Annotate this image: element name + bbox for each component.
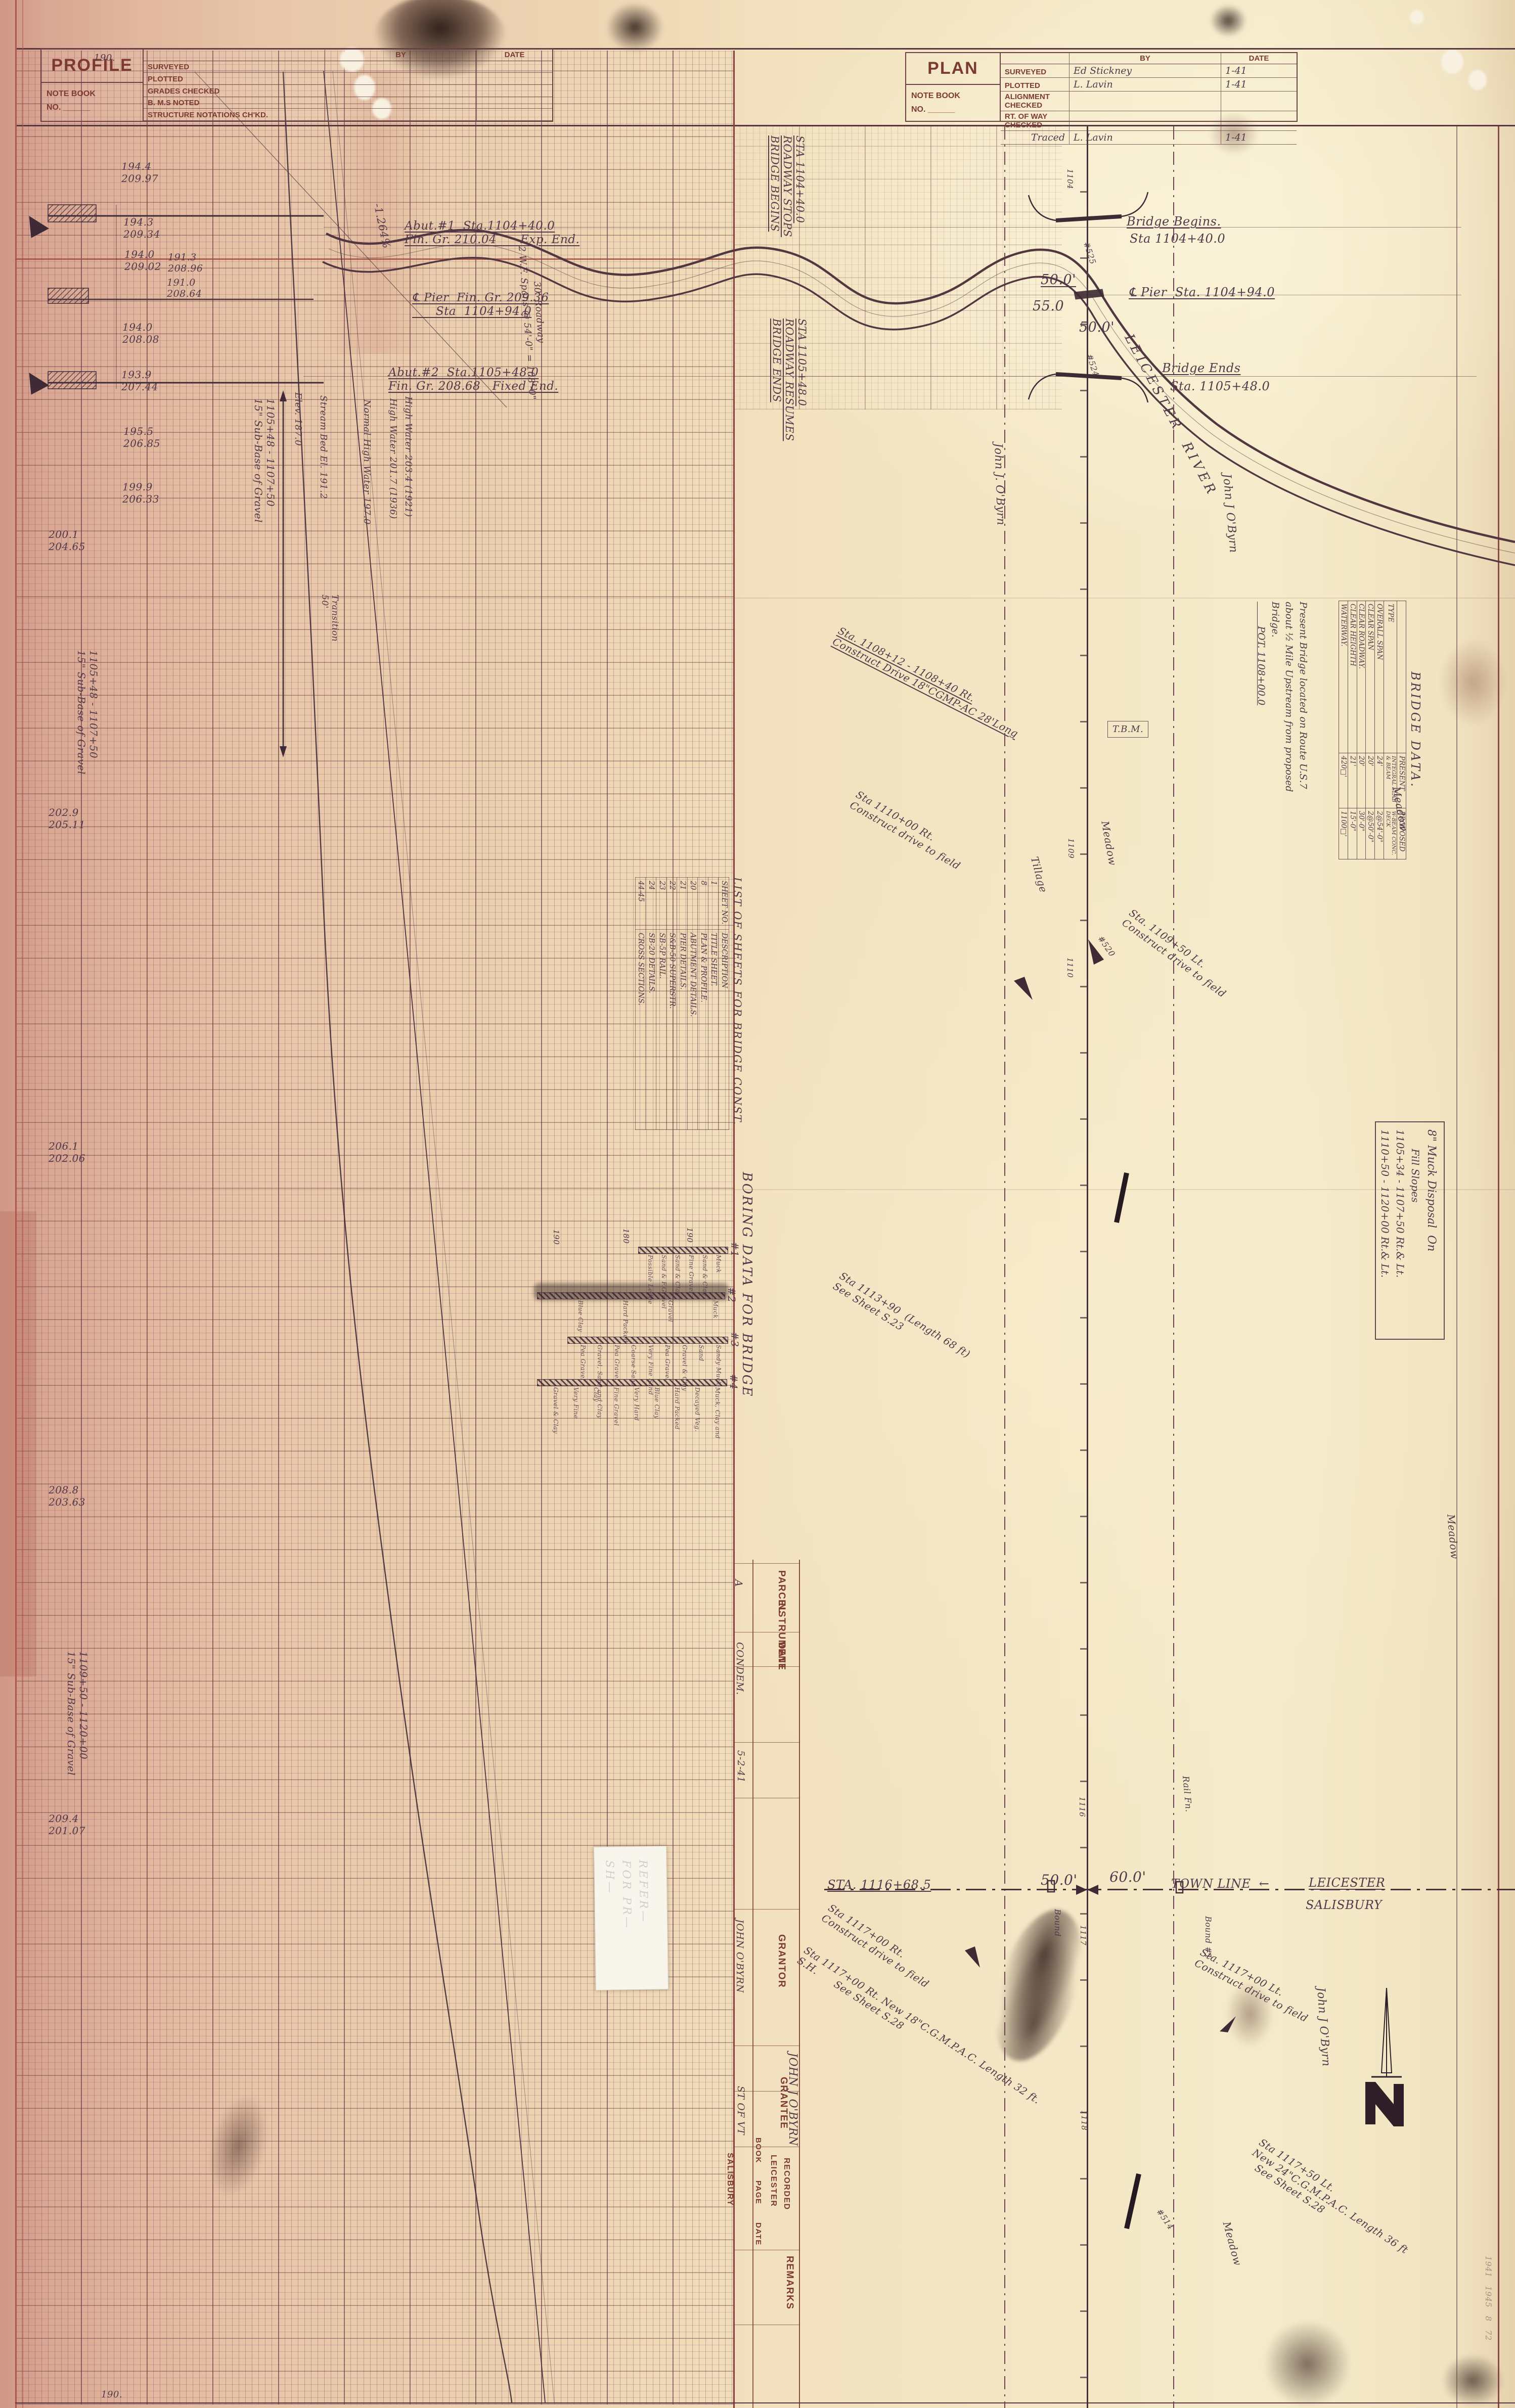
row-instrument: CONDEM. bbox=[734, 1642, 745, 1695]
row-label: SURVEYED bbox=[144, 61, 325, 73]
sta-1118: 1118 bbox=[1079, 2110, 1088, 2130]
label-line: SH— bbox=[603, 1860, 616, 1895]
muck-line: 1110+50 - 1120+00 Rt.& Lt. bbox=[1377, 1129, 1393, 1332]
hdr-remarks: REMARKS bbox=[784, 2256, 795, 2310]
hdr-book: BOOK bbox=[753, 2138, 763, 2163]
dim-55: 55.0 bbox=[1033, 298, 1064, 314]
elev-pair: 206.1 202.06 bbox=[49, 1141, 85, 1164]
hdr-rec-date: DATE bbox=[753, 2222, 763, 2246]
sheets-grid: SHEET NO.DESCRIPTION1TITLE SHEET.8PLAN &… bbox=[635, 877, 729, 1130]
col-by: BY bbox=[325, 49, 476, 61]
boring-stratum: Fine Gravel bbox=[613, 1387, 620, 1426]
elev-pair: 191.0 208.64 bbox=[167, 277, 202, 300]
boring-bar-3 bbox=[567, 1337, 728, 1344]
stream-bed: Stream Bed El. 191.2 bbox=[318, 395, 329, 499]
bridge-ends: Bridge Ends bbox=[1162, 361, 1241, 375]
bridge-data-cell: TYPE bbox=[1384, 601, 1397, 753]
sheets-cell: SB-5P RAIL. bbox=[656, 930, 667, 1130]
land-meadow-4: Meadow bbox=[1220, 2220, 1243, 2267]
sheets-cell: 22 bbox=[666, 878, 677, 930]
elev-scale: 190. bbox=[101, 2389, 122, 2400]
bridge-data-cell: CLEAR SPAN bbox=[1366, 601, 1375, 753]
hdr-page: PAGE bbox=[753, 2180, 763, 2204]
boring-stratum: Fine Gravel bbox=[688, 1255, 695, 1294]
sheets-cell: 24 bbox=[646, 878, 656, 930]
row-by bbox=[1069, 92, 1221, 111]
sheets-col: SHEET NO. bbox=[719, 878, 729, 930]
sheets-cell: ABUTMENT DETAILS. bbox=[687, 930, 698, 1130]
boring-stratum: Very Fine bbox=[572, 1387, 580, 1419]
stain bbox=[1263, 2320, 1352, 2408]
boring-stratum: Decayed Veg. bbox=[694, 1387, 701, 1432]
boring-stratum: Pea Gravel bbox=[579, 1345, 586, 1381]
boring-scale: 190 bbox=[685, 1228, 694, 1243]
muck-disposal-note: 8" Muck Disposal On Fill Slopes1105+34 -… bbox=[1375, 1121, 1445, 1340]
hdr-grantor: GRANTOR bbox=[776, 1934, 787, 1988]
roadway-stops: STA 1104+40.0 ROADWAY STOPS BRIDGE BEGIN… bbox=[769, 135, 806, 237]
normal-hw: Normal High Water 197.0 bbox=[362, 399, 372, 525]
boring-bar-4 bbox=[537, 1379, 727, 1386]
elev-pair: 199.9 206.33 bbox=[122, 481, 159, 505]
profile-paper-tint bbox=[0, 0, 743, 2408]
row-date bbox=[476, 73, 552, 85]
bridge-ends-sta: Sta. 1105+48.0 bbox=[1170, 379, 1270, 393]
tree-514: #514 bbox=[1154, 2207, 1176, 2232]
boring-524: #524 bbox=[1084, 353, 1100, 378]
boring-stratum: Blue Clay bbox=[577, 1300, 584, 1332]
sta-1116: 1116 bbox=[1077, 1797, 1086, 1817]
label-line: FOR PR— bbox=[619, 1860, 633, 1930]
road-centerline bbox=[1087, 126, 1088, 2408]
boring-stratum: Clay bbox=[593, 1387, 600, 1402]
elev-pair: 200.1 204.65 bbox=[49, 529, 85, 553]
sta-1104: 1104 bbox=[1065, 169, 1074, 189]
row-table-vline bbox=[799, 1560, 800, 2408]
hdr-grantee: GRANTEE bbox=[778, 2077, 789, 2129]
boring-stratum: Muck bbox=[712, 1300, 719, 1319]
boring-stratum: Muck bbox=[715, 1255, 722, 1273]
elev-pair: 194.0 208.08 bbox=[122, 322, 159, 345]
station-ticks bbox=[1080, 126, 1087, 2408]
right-inner-border bbox=[1456, 126, 1457, 2408]
land-meadow-3: Meadow bbox=[1444, 1514, 1460, 1560]
paper-spot bbox=[1410, 10, 1424, 24]
boring-title: BORING DATA FOR BRIDGE bbox=[739, 1172, 754, 1397]
paper-spot bbox=[1468, 70, 1487, 90]
hdr-leicester: LEICESTER bbox=[768, 2155, 778, 2207]
bridge-data-cell: CLEAR ROADWAY. bbox=[1357, 601, 1366, 753]
pier-sta: ℄ Pier Sta. 1104+94.0 bbox=[1129, 285, 1275, 299]
sheets-cell: SB-20 DETAILS. bbox=[646, 930, 656, 1130]
sheets-cell: 44-45 bbox=[635, 878, 646, 930]
subbase-span-1: 1105+48 - 1107+50 15" Sub-Base of Gravel bbox=[252, 398, 276, 523]
tree-520: #520 bbox=[1096, 934, 1117, 959]
boring-id: #4 bbox=[727, 1374, 739, 1389]
row-date bbox=[476, 61, 552, 73]
notebook-cell: NOTE BOOK NO. ______ bbox=[41, 82, 143, 121]
hdr-recorded: RECORDED bbox=[781, 2158, 791, 2210]
col-by: BY bbox=[1069, 53, 1221, 64]
river-name: LEICESTER RIVER bbox=[1121, 332, 1220, 499]
boring-stratum: Sand & Clay bbox=[701, 1255, 708, 1296]
boring-stratum: Pea Gravel bbox=[664, 1345, 671, 1381]
boring-bar-2 bbox=[537, 1292, 725, 1299]
bridge-data-cell: 20' bbox=[1366, 753, 1375, 808]
muck-line: Fill Slopes bbox=[1408, 1129, 1423, 1332]
bridge-data-cell: 20' bbox=[1357, 753, 1366, 808]
row-date bbox=[476, 109, 552, 121]
drive-1110: Sta 1110+00 Rt. Construct drive to field bbox=[848, 789, 968, 872]
row-date: 1-41 bbox=[1221, 64, 1297, 78]
north-arrow bbox=[1365, 1988, 1404, 2126]
boring-stratum: Muck, Clay and bbox=[714, 1387, 721, 1439]
note-line: about ½ Mile Upstream from proposed bbox=[1282, 602, 1296, 842]
boring-stratum: Sand & Clay bbox=[674, 1255, 681, 1296]
row-grantor: JOHN O'BYRN bbox=[734, 1919, 745, 1993]
row-by bbox=[325, 109, 476, 121]
boring-stratum: Gravel bbox=[667, 1300, 674, 1322]
leader-arrows bbox=[965, 939, 1236, 2032]
elev-pair: 195.5 206.85 bbox=[123, 426, 160, 449]
boring-stratum: Blue Clay bbox=[653, 1387, 660, 1419]
dim-50-a: 50.0' bbox=[1041, 272, 1076, 288]
owner-obyrn-3: John J O'Byrn bbox=[1314, 1987, 1332, 2067]
sheets-cell: 1 bbox=[708, 878, 719, 930]
culvert-1113: Sta 1113+90 (Length 68 ft) See Sheet S.2… bbox=[831, 1270, 972, 1371]
drawing-sheet: PROFILENOTE BOOK NO. ______BYDATESURVEYE… bbox=[0, 0, 1515, 2408]
tbm: T.B.M. bbox=[1107, 721, 1148, 738]
bridge-data-cell: WATERWAY. bbox=[1339, 601, 1348, 753]
right-border bbox=[1498, 126, 1499, 2408]
elev-pair: 193.9 207.44 bbox=[121, 369, 158, 393]
bridge-data-cell: 420□' bbox=[1339, 753, 1348, 808]
elev-pair: 194.3 209.34 bbox=[123, 216, 160, 240]
elev-pair: 194.0 209.02 bbox=[124, 249, 161, 272]
elev-pair: 194.4 209.97 bbox=[121, 161, 158, 185]
row-label: ALIGNMENT CHECKED bbox=[1001, 92, 1069, 111]
elev-pair: 191.3 208.96 bbox=[168, 252, 203, 275]
bridge-data-cell: 2@54'-0" bbox=[1375, 808, 1384, 859]
note-line: Bridge. bbox=[1268, 602, 1282, 842]
boring-bar-1 bbox=[638, 1247, 728, 1254]
boring-stratum: Gravel & Clay bbox=[552, 1387, 559, 1434]
title-block-rows: BYDATESURVEYEDPLOTTEDGRADES CHECKEDB. M.… bbox=[144, 49, 552, 121]
row-date bbox=[1221, 92, 1297, 111]
bound-2: Bound #1 bbox=[1203, 1916, 1213, 1959]
sheets-cell: PIER DETAILS. bbox=[677, 930, 688, 1130]
row-by: L. Lavin bbox=[1069, 131, 1221, 145]
bridge-data-cell: 21' bbox=[1348, 753, 1357, 808]
row-date bbox=[476, 97, 552, 109]
bridge-data-title: BRIDGE DATA. bbox=[1408, 601, 1422, 859]
boring-scale: 190 bbox=[551, 1230, 560, 1245]
drive-1108: Sta. 1108+12 - 1108+40 Rt. Construct Dri… bbox=[831, 625, 1026, 740]
title-block-title: PLAN bbox=[906, 53, 1000, 84]
hdr-date: DATE bbox=[776, 1642, 787, 1670]
row-by bbox=[325, 85, 476, 97]
corner-record: 1941 1945 8 72 bbox=[1483, 2256, 1493, 2341]
boring-stratum: Pea Gravel bbox=[613, 1345, 620, 1381]
row-table-vline bbox=[752, 1560, 753, 2408]
bridge-data-cell: 24' bbox=[1375, 753, 1384, 808]
high-water-1936: High Water 201.7 (1936) bbox=[388, 398, 398, 519]
note-line: Present Bridge located on Route U.S.7 bbox=[1296, 602, 1310, 842]
elev-pair: 202.9 205.11 bbox=[49, 807, 85, 831]
sta-1110: 1110 bbox=[1065, 958, 1074, 978]
culvert-1117-lt: Sta 1117+50 Lt. New 24"C.G.M.P.A.C. Leng… bbox=[1243, 2137, 1416, 2266]
sheets-cell: CROSS SECTIONS. bbox=[635, 930, 646, 1130]
owner-obyrn-2: John J O'Byrn bbox=[1220, 473, 1240, 554]
row-by: L. Lavin bbox=[1069, 78, 1221, 92]
row-label: SURVEYED bbox=[1001, 64, 1069, 78]
bridge-begins-sta: Sta 1104+40.0 bbox=[1130, 232, 1225, 246]
stain bbox=[1441, 2354, 1504, 2407]
boring-stratum: Hard Packed bbox=[674, 1387, 681, 1430]
row-by bbox=[1069, 111, 1221, 131]
title-block-left: PLANNOTE BOOK NO. ______ bbox=[906, 53, 1001, 121]
hdr-salisbury: SALISBURY bbox=[725, 2153, 734, 2206]
dim-50-b: 50.0' bbox=[1079, 320, 1115, 336]
row-date bbox=[476, 85, 552, 97]
rail-fence: Rail Fn. bbox=[1180, 1776, 1193, 1812]
sheets-cell: 20 bbox=[687, 878, 698, 930]
row-date bbox=[1221, 111, 1297, 131]
row-label: B. M.S NOTED bbox=[144, 97, 325, 109]
row-by bbox=[325, 73, 476, 85]
boring-id: #2 bbox=[725, 1287, 737, 1302]
bridge-data-cell: 2@50'-0" bbox=[1366, 808, 1375, 859]
row-date: 5-2-41 bbox=[735, 1750, 746, 1783]
townline-label: TOWN LINE ← bbox=[1171, 1877, 1269, 1891]
row-label: GRADES CHECKED bbox=[144, 85, 325, 97]
boring-id: #3 bbox=[728, 1332, 740, 1347]
transition: Transition 50' bbox=[320, 595, 340, 642]
row-label: PLOTTED bbox=[1001, 78, 1069, 92]
boring-stratum: Very Hard bbox=[633, 1387, 640, 1421]
roadway-resumes: STA 1105+48.0 ROADWAY RESUMES BRIDGE END… bbox=[771, 319, 808, 441]
town-leicester: LEICESTER bbox=[1309, 1876, 1385, 1890]
sheets-cell: PLAN & PROFILE. bbox=[698, 930, 708, 1130]
townline-dim-60: 60.0' bbox=[1109, 1869, 1146, 1885]
bridge-data-cell: 1100□' bbox=[1339, 808, 1348, 859]
row-date: 1-41 bbox=[1221, 78, 1297, 92]
col-blank bbox=[1001, 53, 1069, 64]
ink-stain bbox=[1210, 4, 1247, 37]
sheets-cell: 8 bbox=[698, 878, 708, 930]
muck-line: 8" Muck Disposal On bbox=[1423, 1129, 1440, 1332]
col-blank bbox=[144, 49, 325, 61]
boring-id: #1 bbox=[728, 1242, 740, 1257]
row-label: PLOTTED bbox=[144, 73, 325, 85]
sheets-cell: 21 bbox=[677, 878, 688, 930]
row-by: Ed Stickney bbox=[1069, 64, 1221, 78]
profile-title-block: PROFILENOTE BOOK NO. ______BYDATESURVEYE… bbox=[40, 48, 553, 122]
abut1-note: Abut.#1 Sta.1104+40.0 Fin. Gr. 210.04 Ex… bbox=[405, 219, 580, 247]
paper-spot bbox=[1441, 50, 1463, 74]
bridge-begins: Bridge Begins. bbox=[1127, 214, 1221, 229]
elev-scale: 190. bbox=[94, 53, 115, 63]
muck-line: 1105+34 - 1107+50 Rt.& Lt. bbox=[1393, 1129, 1408, 1332]
bridge-data-col bbox=[1397, 601, 1406, 753]
sta-1109: 1109 bbox=[1066, 838, 1075, 858]
owner-obyrn-1: John J. O'Byrn bbox=[991, 443, 1007, 526]
stain bbox=[1439, 638, 1507, 726]
elev-pair: 208.8 203.63 bbox=[49, 1484, 85, 1508]
row-label: STRUCTURE NOTATIONS CH'KD. bbox=[144, 109, 325, 121]
row-date: 1-41 bbox=[1221, 131, 1297, 145]
sta-1117: 1117 bbox=[1078, 1925, 1087, 1945]
present-bridge-note: Present Bridge located on Route U.S.7abo… bbox=[1259, 602, 1310, 842]
pasted-label-text: REFER— FOR PR— SH— bbox=[601, 1859, 652, 1930]
sheets-cell: 23 bbox=[656, 878, 667, 930]
drive-1109: Sta. 1109+50 Lt. Construct drive to fiel… bbox=[1120, 907, 1235, 1000]
pasted-label: REFER— FOR PR— SH— bbox=[594, 1846, 669, 1990]
high-water-1921: High Water 203.4 (1921) bbox=[403, 396, 414, 517]
bridge-data-cell: CLEAR HEIGHTH bbox=[1348, 601, 1357, 753]
bridge-data-cell: 15'-0" bbox=[1348, 808, 1357, 859]
land-meadow-1: Meadow bbox=[1099, 820, 1119, 867]
sheets-cell: S&B-50 SUPERSTR. bbox=[666, 930, 677, 1130]
list-of-sheets-table: LIST OF SHEETS FOR BRIDGE CONST.SHEET NO… bbox=[576, 877, 743, 1130]
bridge-data-cell: 30'-0" bbox=[1357, 808, 1366, 859]
subbase-span-2: 1105+48 - 1107+50 15" Sub-Base of Gravel bbox=[75, 650, 99, 775]
boring-525: #525 bbox=[1081, 241, 1097, 266]
land-tillage: Tillage bbox=[1028, 855, 1049, 894]
elev-187: Elev. 187.0 bbox=[293, 392, 303, 446]
title-block-title: PROFILE bbox=[41, 49, 143, 82]
row-parcel-a: A bbox=[732, 1579, 744, 1587]
sheets-cell: TITLE SHEET. bbox=[708, 930, 719, 1130]
boring-scale: 180 bbox=[621, 1229, 630, 1244]
col-date: DATE bbox=[1221, 53, 1297, 64]
subbase-span-3: 1109+50 - 1120+00 15" Sub-Base of Gravel bbox=[65, 1651, 89, 1776]
row-by bbox=[325, 61, 476, 73]
town-salisbury: SALISBURY bbox=[1306, 1898, 1382, 1912]
row-label: Traced bbox=[1001, 131, 1069, 145]
boring-stratum: Sand bbox=[698, 1345, 705, 1361]
note-pot: POT. 1108+00.0 bbox=[1254, 602, 1268, 842]
row-grantee: ST OF VT bbox=[735, 2086, 746, 2135]
row-line-right bbox=[1173, 126, 1174, 2408]
row-label: RT. OF WAY CHECKED bbox=[1001, 111, 1069, 131]
row-by bbox=[325, 97, 476, 109]
sheets-col: DESCRIPTION bbox=[719, 930, 729, 1130]
title-block-rows: BYDATESURVEYEDEd Stickney1-41PLOTTEDL. L… bbox=[1001, 53, 1297, 121]
townline-dim-50: 50.0' bbox=[1041, 1872, 1078, 1888]
townline-sta: STA. 1116+68.5 bbox=[827, 1878, 931, 1892]
bridge-data-cell: OVERALL SPAN bbox=[1375, 601, 1384, 753]
title-block-left: PROFILENOTE BOOK NO. ______ bbox=[41, 49, 144, 121]
notebook-cell: NOTE BOOK NO. ______ bbox=[906, 84, 1000, 121]
elev-pair: 209.4 201.07 bbox=[49, 1813, 85, 1837]
bound-1: Bound bbox=[1052, 1909, 1062, 1937]
culvert-marks bbox=[1117, 1173, 1139, 2229]
plan-title-block: PLANNOTE BOOK NO. ______BYDATESURVEYEDEd… bbox=[905, 52, 1298, 122]
label-line: REFER— bbox=[636, 1859, 650, 1924]
col-date: DATE bbox=[476, 49, 552, 61]
sheets-title: LIST OF SHEETS FOR BRIDGE CONST. bbox=[731, 877, 743, 1130]
